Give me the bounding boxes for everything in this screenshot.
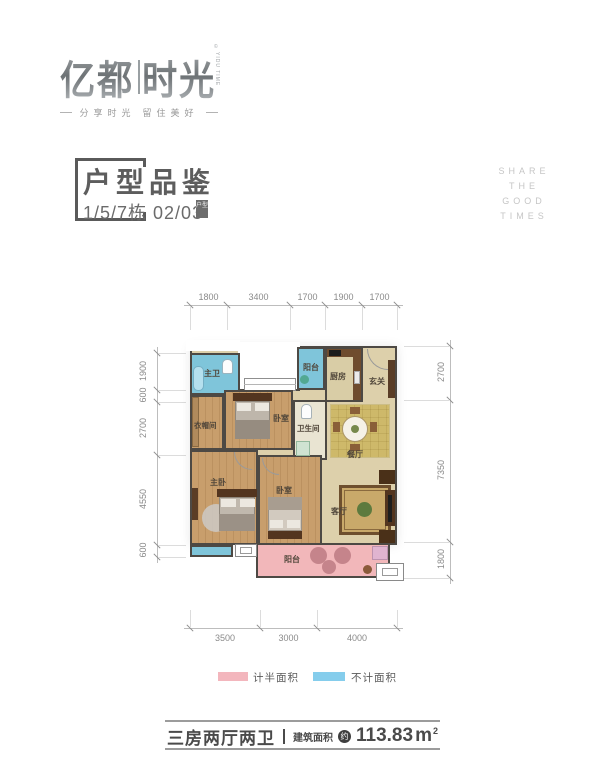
dim-guide — [158, 545, 186, 546]
dim-top-3: 1900 — [325, 292, 362, 302]
room-label: 厨房 — [330, 371, 346, 382]
dim-left-2: 2700 — [138, 408, 148, 448]
poster-canvas: 亿都 时光 © YIDU TIME 分享时光 留住美好 户型品鉴 1/5/7栋 … — [0, 0, 600, 770]
room-label: 客厅 — [331, 506, 347, 517]
side-slogan: SHARE THE GOOD TIMES — [488, 164, 560, 224]
dim-guide — [325, 306, 326, 330]
round-chair-icon — [334, 547, 351, 564]
toilet-icon — [301, 404, 312, 419]
blanket-icon — [268, 497, 302, 510]
room-label: 卧室 — [276, 485, 292, 496]
dim-line-bottom — [184, 628, 403, 629]
brand-logo: 亿都 时光 — [60, 48, 226, 106]
ac-unit-icon — [382, 568, 398, 576]
pillow-icon — [237, 403, 251, 411]
footer-rule-top — [165, 720, 440, 722]
dim-guide — [158, 557, 186, 558]
dim-guide — [404, 346, 449, 347]
footer-summary: 三房两厅两卫 建筑面积 约 113.83 m 2 — [165, 724, 440, 748]
plant-icon — [300, 375, 309, 384]
pillow-icon — [270, 520, 283, 528]
dim-guide — [290, 306, 291, 330]
round-table-icon — [322, 560, 336, 574]
room-label: 主卫 — [204, 368, 220, 379]
pillow-icon — [221, 499, 236, 507]
tagline-dash-right — [206, 112, 218, 113]
centerpiece-icon — [351, 425, 359, 433]
dim-line-top — [184, 305, 403, 306]
ac-unit-icon — [240, 547, 252, 554]
dim-guide — [190, 610, 191, 627]
footer-divider — [283, 729, 285, 744]
side-slogan-line: TIMES — [488, 209, 560, 224]
layout-type: 三房两厅两卫 — [167, 724, 275, 749]
dim-bottom-1: 3000 — [260, 633, 317, 643]
brand-right: 时光 — [142, 48, 216, 106]
page-title: 户型品鉴 — [83, 161, 215, 201]
bed-headboard-icon — [217, 489, 257, 497]
plant-icon — [357, 502, 372, 517]
dim-left-3: 4550 — [138, 479, 148, 519]
dim-guide — [158, 455, 186, 456]
bathtub-icon — [193, 366, 204, 391]
dim-left-4: 600 — [138, 530, 148, 570]
dim-right-2: 1800 — [436, 539, 446, 579]
dim-guide — [190, 306, 191, 330]
chair-icon — [350, 407, 360, 414]
tagline-right: 留住美好 — [143, 106, 199, 119]
area-unit: m — [415, 725, 432, 747]
dim-guide — [158, 353, 186, 354]
bed-headboard-icon — [268, 531, 302, 539]
tv-icon — [388, 495, 392, 522]
pillow-icon — [240, 499, 255, 507]
dim-guide — [404, 400, 449, 401]
pillow-icon — [287, 520, 300, 528]
dim-guide — [260, 610, 261, 627]
dim-guide — [397, 306, 398, 330]
chair-icon — [370, 422, 377, 432]
shower-icon — [296, 441, 310, 456]
room-label: 玄关 — [369, 376, 385, 387]
tv-cabinet-icon — [192, 488, 198, 520]
bed-headboard-icon — [233, 393, 272, 401]
pillow-icon — [255, 403, 269, 411]
side-slogan-line: THE — [488, 179, 560, 194]
blanket-icon — [235, 420, 270, 439]
plant-icon — [363, 565, 372, 574]
toilet-icon — [222, 359, 233, 374]
approx-badge: 约 — [338, 730, 351, 743]
dim-bottom-0: 3500 — [190, 633, 260, 643]
legend-label-not-counted: 不计面积 — [351, 670, 397, 685]
room-label: 卫生间 — [297, 423, 320, 434]
brand-divider — [138, 60, 140, 94]
stove-icon — [329, 350, 341, 356]
brand-left: 亿都 — [60, 48, 134, 106]
brand-tagline: 分享时光 留住美好 — [60, 106, 218, 119]
room-label: 餐厅 — [347, 449, 363, 460]
dim-bottom-2: 4000 — [317, 633, 397, 643]
exterior-patch — [186, 340, 240, 351]
tagline-dash-left — [60, 112, 72, 113]
legend-label-half-area: 计半面积 — [253, 670, 299, 685]
area-value: 113.83 — [356, 725, 413, 747]
legend-swatch-half-area — [218, 672, 248, 681]
dim-guide — [158, 402, 186, 403]
side-slogan-line: GOOD — [488, 194, 560, 209]
dim-top-0: 1800 — [190, 292, 227, 302]
dim-guide — [317, 610, 318, 627]
dim-right-1: 7350 — [436, 450, 446, 490]
sink-icon — [354, 371, 360, 384]
chair-icon — [333, 422, 340, 432]
room-label: 阳台 — [284, 554, 300, 565]
dim-guide — [227, 306, 228, 330]
room-label: 主卧 — [210, 477, 226, 488]
dim-guide — [397, 610, 398, 627]
brand-copyright: © — [214, 44, 218, 50]
room-label: 卧室 — [273, 413, 289, 424]
dim-top-4: 1700 — [362, 292, 397, 302]
brand-side-text: YIDU TIME — [214, 52, 220, 86]
shoe-cabinet-icon — [388, 360, 395, 398]
tagline-left: 分享时光 — [79, 106, 135, 119]
page-subtitle: 1/5/7栋 02/03 — [83, 199, 203, 225]
subtitle-tag: 户型 — [196, 200, 208, 218]
dim-line-right — [450, 340, 451, 584]
area-exponent: 2 — [433, 726, 438, 736]
room-label: 衣帽间 — [194, 420, 217, 431]
dim-guide — [362, 306, 363, 330]
side-slogan-line: SHARE — [488, 164, 560, 179]
bay-window-line — [244, 384, 296, 385]
blanket-icon — [219, 514, 255, 531]
flower-bed-icon — [372, 546, 388, 560]
area-label: 建筑面积 — [293, 729, 333, 744]
dim-guide — [158, 390, 186, 391]
legend-swatch-not-counted — [313, 672, 345, 681]
media-cabinet-icon — [379, 530, 395, 543]
dim-top-2: 1700 — [290, 292, 325, 302]
flower-trough — [190, 545, 233, 557]
dim-right-0: 2700 — [436, 352, 446, 392]
media-cabinet-icon — [379, 470, 395, 484]
dim-top-1: 3400 — [227, 292, 290, 302]
room-label: 阳台 — [303, 362, 319, 373]
